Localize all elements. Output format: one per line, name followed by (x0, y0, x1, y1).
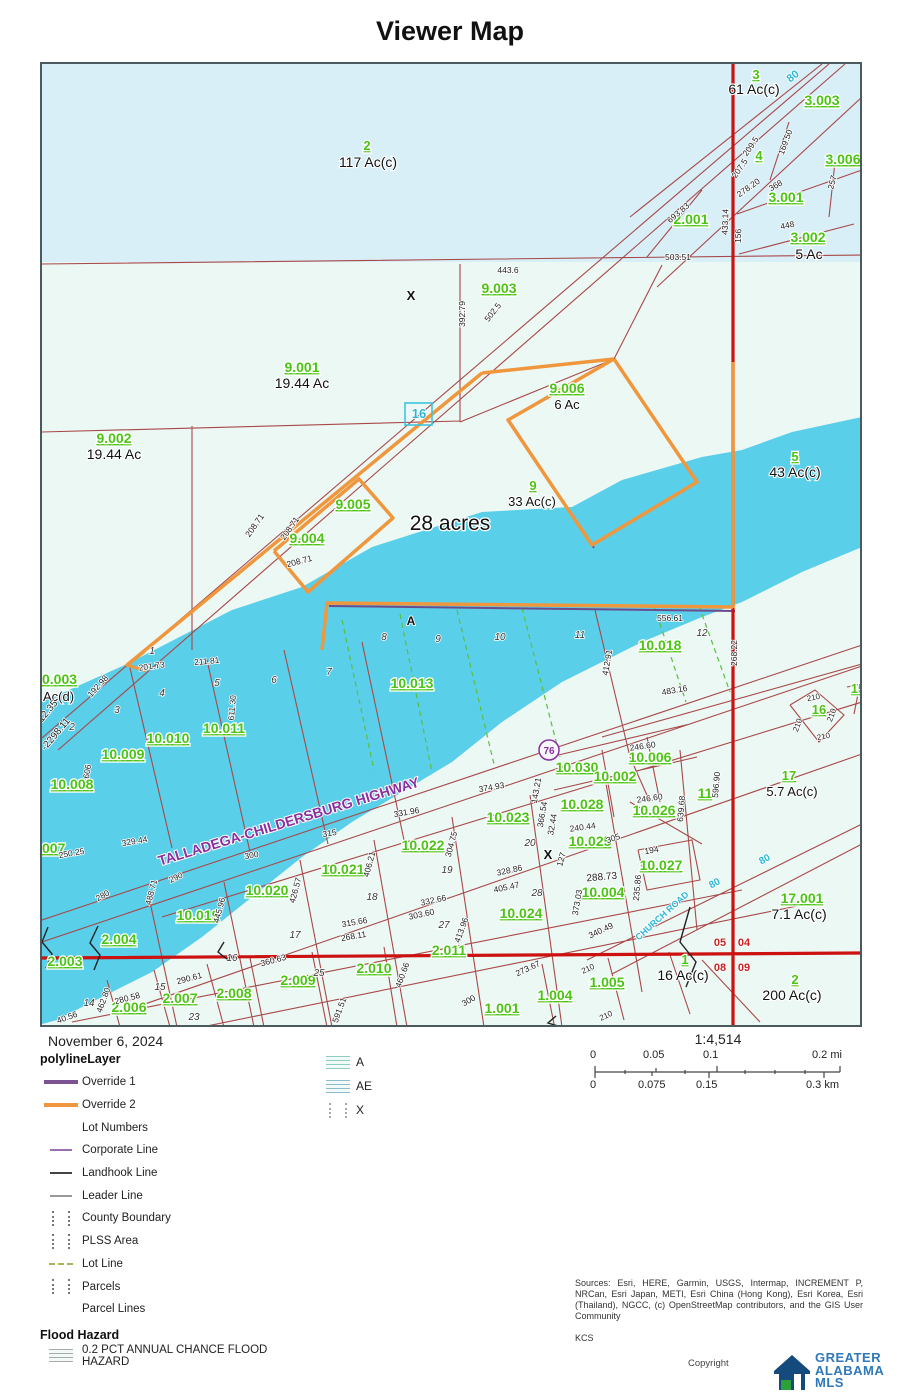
map-label: 33 Ac(c) (508, 494, 556, 509)
legend-item[interactable]: 0.2 PCT ANNUAL CHANCE FLOOD HAZARD (40, 1345, 310, 1368)
map-label: 10.023 (487, 809, 530, 825)
map-label: 9 (435, 634, 441, 645)
map-label: 156 (733, 228, 743, 243)
thick-swatch (40, 1080, 82, 1084)
legend-item-label: Override 1 (82, 1076, 136, 1088)
legend-item[interactable]: County Boundary (40, 1207, 310, 1230)
map-canvas[interactable]: 33.003243.0012.0013.0023.0069.0039.0019.… (40, 62, 862, 1027)
legend-item[interactable]: X (320, 1098, 372, 1122)
map-label: 17 (782, 768, 796, 783)
map-label: 7 (326, 667, 332, 678)
map-label: 6 (271, 675, 277, 686)
map-label: 2 (68, 722, 75, 733)
legend-item-label: Leader Line (82, 1190, 143, 1202)
legend-item-label: A (356, 1055, 364, 1069)
map-label: 25 (312, 968, 325, 979)
map-label: 10.022 (402, 837, 445, 853)
map-label: 5 (791, 449, 798, 464)
map-label: 04 (738, 937, 751, 949)
map-label: 76 (543, 746, 555, 757)
thick-swatch (40, 1103, 82, 1107)
map-label: 1 (681, 952, 688, 967)
legend-item[interactable]: Parcels (40, 1275, 310, 1298)
map-label: 10.009 (102, 746, 145, 762)
legend-list: Override 1Override 2Lot NumbersCorporate… (40, 1071, 310, 1367)
mls-logo-text: GREATER ALABAMA MLS (815, 1352, 884, 1390)
map-label: 12 (696, 628, 708, 639)
map-label: 10.028 (561, 796, 604, 812)
map-label: 5.7 Ac(c) (766, 784, 817, 799)
map-label: 10 (494, 632, 506, 643)
map-label: 10.010 (147, 730, 190, 746)
stripes-swatch (320, 1056, 356, 1069)
map-label: 3.002 (790, 229, 825, 245)
map-label: 3.003 (804, 92, 839, 108)
legend-layer-title: polylineLayer (40, 1052, 121, 1066)
thin-swatch (40, 1172, 82, 1174)
map-label: 18 (366, 892, 378, 903)
map-label: X (407, 288, 416, 303)
legend-item-label: PLSS Area (82, 1235, 138, 1247)
scale-km-2: 0.15 (696, 1079, 717, 1091)
map-label: 443.6 (497, 265, 519, 275)
map-label: 15 (154, 982, 166, 993)
none-swatch (40, 1308, 82, 1310)
map-label: 9.003 (481, 280, 516, 296)
greater-alabama-mls-logo: GREATER ALABAMA MLS (772, 1352, 884, 1392)
map-label: A (407, 614, 416, 628)
map-label: 61 Ac(c) (728, 81, 779, 97)
map-label: 28 (530, 888, 543, 899)
map-label: 2.004 (101, 931, 136, 947)
scale-mi-1: 0.05 (643, 1049, 664, 1061)
legend-item[interactable]: Override 1 (40, 1071, 310, 1094)
map-label: 11 (575, 630, 585, 641)
map-label: 16 (412, 406, 426, 421)
legend-item[interactable]: Parcel Lines (40, 1298, 310, 1321)
map-label: 19.44 Ac (275, 375, 330, 391)
map-label: 3.006 (825, 151, 860, 167)
legend-item[interactable]: PLSS Area (40, 1230, 310, 1253)
map-label: 10.020 (246, 882, 289, 898)
map-label: 16 (226, 953, 238, 964)
map-label: 9.006 (549, 380, 584, 396)
legend-item-label: Override 2 (82, 1099, 136, 1111)
legend-item-label: Parcel Lines (82, 1303, 145, 1315)
flood-hazard-title: Flood Hazard (40, 1325, 310, 1345)
map-label: 17 (289, 930, 301, 941)
map-label: 2.007 (162, 990, 197, 1006)
legend-item[interactable]: A (320, 1050, 372, 1074)
map-label: 9.002 (96, 430, 131, 446)
map-label: 392.79 (457, 301, 467, 327)
thin-swatch (40, 1195, 82, 1197)
scale-km-1: 0.075 (638, 1079, 666, 1091)
map-label: 6 Ac (554, 397, 580, 412)
map-label: 10.004 (582, 884, 625, 900)
map-label: 2.009 (280, 972, 315, 988)
legend-item[interactable]: Lot Line (40, 1253, 310, 1276)
map-label: 10.030 (556, 759, 599, 775)
legend-item[interactable]: Landhook Line (40, 1162, 310, 1185)
scale-mi-3: 0.2 mi (812, 1049, 842, 1061)
legend-item-label: X (356, 1103, 364, 1117)
legend-item-label: County Boundary (82, 1212, 171, 1224)
map-label: 503.51 (665, 252, 691, 262)
map-label: 10.024 (500, 905, 543, 921)
scale-mi-0: 0 (590, 1049, 596, 1061)
scale-ratio: 1:4,514 (588, 1031, 848, 1047)
sources-attribution: Sources: Esri, HERE, Garmin, USGS, Inter… (575, 1278, 863, 1322)
legend-item-label: Lot Numbers (82, 1122, 148, 1134)
legend-item-label: 0.2 PCT ANNUAL CHANCE FLOOD HAZARD (82, 1344, 310, 1368)
map-label: 117 Ac(c) (339, 154, 397, 170)
map-label: 4 (755, 148, 763, 163)
thin-swatch (40, 1149, 82, 1151)
map-label: 8 (381, 632, 387, 643)
map-label: 4 (159, 688, 165, 699)
map-label: 9.004 (289, 530, 324, 546)
map-label: 2.003 (47, 953, 82, 969)
map-label: 2 (363, 138, 370, 153)
map-label: 10.021 (322, 861, 365, 877)
map-label: 9 (529, 478, 536, 493)
dots-swatch (320, 1103, 356, 1118)
map-label: 14 (83, 998, 95, 1009)
map-label: 08 (714, 962, 726, 974)
map-label: 10.002 (594, 768, 637, 784)
map-label: 23 (187, 1012, 200, 1023)
map-label: 16 Ac(c) (657, 967, 708, 983)
map-label: 10.011 (203, 720, 245, 736)
map-label: 10.018 (639, 637, 682, 653)
map-label: 0.003 (42, 671, 77, 687)
dots-swatch (40, 1279, 82, 1294)
map-label: 19 (441, 865, 453, 876)
map-label: 268.22 (729, 640, 739, 666)
viewer-map-page: Viewer Map 33.003243.001 (0, 0, 900, 1392)
map-label: Ac(d) (43, 689, 74, 704)
map-label: 5 Ac (795, 246, 822, 262)
map-label: 200 Ac(c) (762, 987, 821, 1003)
scale-mi-2: 0.1 (703, 1049, 718, 1061)
map-label: 17.001 (781, 890, 824, 906)
map-label: 10.027 (640, 857, 683, 873)
map-label: 7.1 Ac(c) (771, 906, 826, 922)
stripes-swatch (40, 1349, 82, 1362)
copyright-text: Copyright (688, 1358, 729, 1369)
map-label: X (544, 847, 553, 862)
legend-item-label: Landhook Line (82, 1167, 157, 1179)
page-title: Viewer Map (0, 16, 900, 47)
parcel-map: 33.003243.0012.0013.0023.0069.0039.0019.… (42, 64, 860, 1025)
mls-house-icon (772, 1352, 812, 1392)
legend-item-label: Parcels (82, 1281, 120, 1293)
legend-item-label: Corporate Line (82, 1144, 158, 1156)
map-label: 9.005 (335, 496, 370, 512)
map-label: 556.61 (657, 613, 683, 623)
scale-km-3: 0.3 km (806, 1079, 839, 1091)
map-label: 43 Ac(c) (769, 464, 820, 480)
dots-swatch (40, 1211, 82, 1226)
legend-item-label: Lot Line (82, 1258, 123, 1270)
legend-item[interactable]: AE (320, 1074, 372, 1098)
map-label: 2.008 (216, 985, 251, 1001)
map-label: 05 (714, 937, 726, 949)
map-date: November 6, 2024 (48, 1033, 163, 1049)
none-swatch (40, 1127, 82, 1129)
scale-km-0: 0 (590, 1079, 596, 1091)
legend-item-label: AE (356, 1079, 372, 1093)
sources-kcs: KCS (575, 1333, 594, 1343)
dash-swatch (40, 1263, 82, 1265)
map-label: 16 (812, 702, 826, 717)
logo-line-3: MLS (815, 1377, 884, 1390)
map-label: 2.010 (356, 960, 391, 976)
map-label: 09 (738, 962, 750, 974)
map-label: 5 (214, 678, 220, 689)
dots-swatch (40, 1234, 82, 1249)
stripes-swatch (320, 1080, 356, 1093)
map-label: 27 (437, 920, 450, 931)
map-label: 10.013 (391, 675, 434, 691)
map-label: 433.14 (720, 208, 731, 235)
map-label: 1 (149, 646, 155, 657)
map-label: 19.44 Ac (87, 446, 142, 462)
map-label: 3 (752, 67, 759, 82)
map-label: 1.005 (589, 974, 624, 990)
map-label: 2 (791, 972, 798, 987)
map-label: 15 (851, 681, 860, 696)
legend-item[interactable]: Lot Numbers (40, 1116, 310, 1139)
map-label: 3 (114, 705, 120, 716)
flood-zone-legend: AAEX (320, 1050, 372, 1122)
legend-item[interactable]: Leader Line (40, 1184, 310, 1207)
legend-item[interactable]: Corporate Line (40, 1139, 310, 1162)
legend-item[interactable]: Override 2 (40, 1094, 310, 1117)
map-label: 28 acres (410, 512, 491, 535)
map-label: 9.001 (284, 359, 319, 375)
map-label: 1.001 (484, 1000, 519, 1016)
map-label: 20 (523, 838, 536, 849)
map-label: 1.004 (537, 987, 572, 1003)
